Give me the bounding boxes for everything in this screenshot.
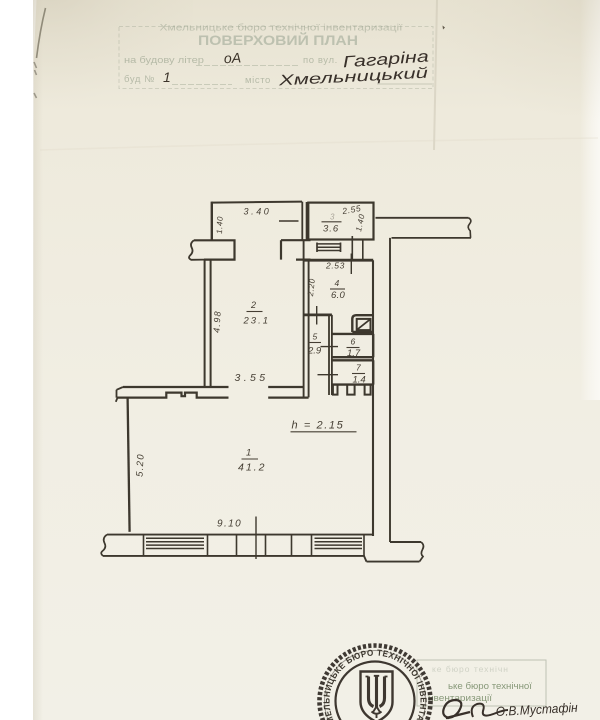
svg-text:5.20: 5.20 <box>135 453 147 477</box>
svg-text:3: 3 <box>330 213 335 222</box>
svg-text:6: 6 <box>351 337 356 347</box>
svg-text:23.1: 23.1 <box>243 316 271 327</box>
svg-text:41.2: 41.2 <box>238 462 266 474</box>
svg-text:3.40: 3.40 <box>244 207 272 217</box>
svg-text:2.9: 2.9 <box>307 346 322 357</box>
svg-text:6.0: 6.0 <box>331 290 346 301</box>
svg-text:ПОВЕРХОВИЙ ПЛАН: ПОВЕРХОВИЙ ПЛАН <box>198 31 358 48</box>
svg-text:9.10: 9.10 <box>217 519 242 530</box>
svg-text:5: 5 <box>313 332 318 342</box>
svg-text:3.6: 3.6 <box>323 224 339 235</box>
svg-text:1: 1 <box>246 448 251 459</box>
svg-text:1.4: 1.4 <box>353 375 366 386</box>
svg-text:буд №: буд № <box>124 74 155 85</box>
svg-text:2: 2 <box>250 300 256 310</box>
svg-text:ке бюро технічн: ке бюро технічн <box>432 664 508 674</box>
svg-text:4: 4 <box>335 278 340 288</box>
svg-text:оА: оА <box>223 49 241 66</box>
svg-text:місто: місто <box>245 75 271 86</box>
svg-text:1: 1 <box>163 69 171 85</box>
svg-text:3.55: 3.55 <box>235 372 269 384</box>
svg-text:1.7: 1.7 <box>347 348 361 359</box>
svg-text:h = 2.15: h = 2.15 <box>292 420 345 432</box>
svg-text:2.53: 2.53 <box>325 261 345 271</box>
svg-text:ьке бюро технічної: ьке бюро технічної <box>448 681 532 692</box>
svg-text:1.40: 1.40 <box>215 216 225 234</box>
svg-text:4.98: 4.98 <box>212 310 223 333</box>
svg-text:7: 7 <box>356 363 361 373</box>
svg-text:на будову літер: на будову літер <box>124 55 204 66</box>
svg-text:по вул.: по вул. <box>303 55 338 66</box>
